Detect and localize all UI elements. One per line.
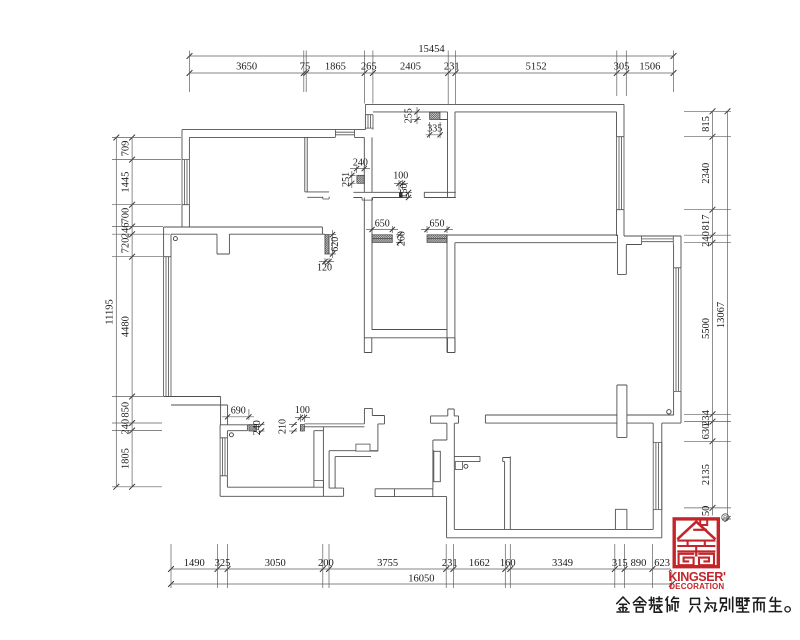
svg-text:240: 240 [252,420,263,435]
svg-text:650: 650 [430,219,445,230]
svg-text:231: 231 [442,558,458,569]
svg-text:200: 200 [318,558,334,569]
svg-text:75: 75 [300,62,311,73]
svg-text:1662: 1662 [469,558,490,569]
svg-text:240: 240 [701,231,712,247]
svg-text:1490: 1490 [184,558,205,569]
svg-text:305: 305 [614,62,630,73]
svg-text:2135: 2135 [701,464,712,485]
svg-text:2340: 2340 [701,163,712,184]
svg-text:3650: 3650 [236,62,257,73]
svg-text:815: 815 [701,116,712,132]
svg-text:700: 700 [121,208,132,224]
svg-text:1506: 1506 [639,62,660,73]
svg-text:210: 210 [277,419,288,434]
svg-text:240: 240 [353,158,368,169]
svg-text:630: 630 [701,424,712,440]
svg-text:325: 325 [215,558,231,569]
svg-text:231: 231 [444,62,460,73]
svg-text:850: 850 [121,402,132,418]
svg-text:690: 690 [231,406,246,417]
svg-text:100: 100 [393,171,408,182]
svg-text:1445: 1445 [121,172,132,193]
svg-text:3050: 3050 [265,558,286,569]
svg-text:246: 246 [121,222,132,238]
svg-text:315: 315 [612,558,628,569]
svg-text:265: 265 [361,62,377,73]
svg-text:120: 120 [317,263,332,274]
svg-text:1805: 1805 [121,448,132,469]
svg-text:650: 650 [375,219,390,230]
svg-text:3349: 3349 [552,558,573,569]
svg-text:255: 255 [404,108,415,123]
svg-text:100: 100 [295,405,310,416]
svg-text:5500: 5500 [701,318,712,339]
svg-text:251: 251 [341,172,352,187]
svg-text:623: 623 [654,558,670,569]
svg-text:335: 335 [427,124,442,135]
svg-text:13067: 13067 [716,302,727,328]
svg-text:150: 150 [399,184,410,199]
svg-text:890: 890 [631,558,647,569]
svg-text:720: 720 [121,238,132,254]
svg-text:16050: 16050 [408,574,434,585]
svg-text:1865: 1865 [325,62,346,73]
svg-text:260: 260 [397,231,408,246]
svg-text:2405: 2405 [400,62,421,73]
svg-text:240: 240 [121,419,132,435]
svg-text:15454: 15454 [418,44,445,55]
svg-text:11195: 11195 [105,299,116,324]
svg-text:620: 620 [330,237,341,252]
svg-text:R: R [723,515,728,522]
svg-text:709: 709 [121,141,132,157]
svg-text:160: 160 [500,558,516,569]
svg-text:5152: 5152 [526,62,547,73]
svg-text:817: 817 [701,215,712,231]
svg-text:234: 234 [701,409,712,426]
svg-text:4480: 4480 [121,316,132,337]
svg-text:DECORATION: DECORATION [669,582,724,591]
svg-text:3755: 3755 [377,558,398,569]
